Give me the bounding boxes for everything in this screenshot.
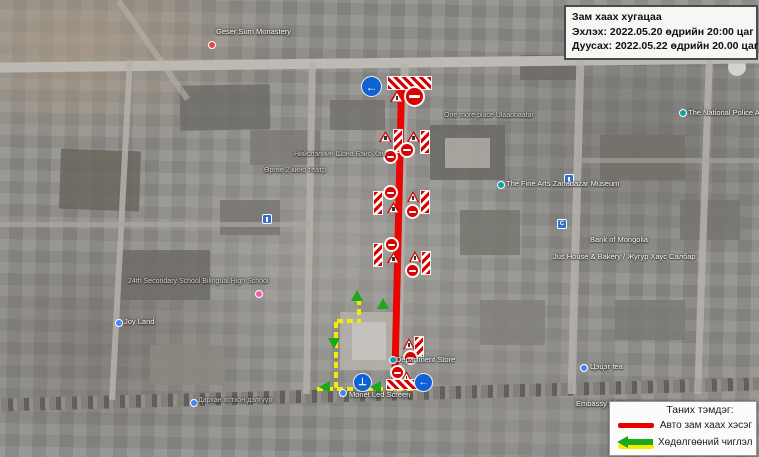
chevron-v-sign-icon (373, 243, 383, 267)
closure-title: Зам хаах хугацаа (572, 10, 751, 25)
triangle-mark (392, 207, 394, 211)
poi-dot-red-icon (208, 41, 216, 49)
closed-section-swatch (618, 417, 658, 434)
building-block (445, 138, 490, 168)
poi-dot-pink-icon (255, 290, 263, 298)
map-label: The National Police Age (688, 108, 759, 117)
no-entry-bar (409, 270, 416, 272)
building-block (352, 322, 386, 360)
poi-dot-blue-icon (339, 389, 347, 397)
building-block (120, 250, 210, 300)
chevron-v-sign-icon (373, 191, 383, 215)
triangle-mark (414, 256, 416, 260)
legend-item-label: Хөдөлгөөний чиглэл (658, 437, 752, 448)
building-block (680, 200, 740, 240)
map-label: Department Store (396, 355, 455, 364)
map-label: Дархан хотхон дэлгүүр (198, 397, 272, 404)
triangle-mark (396, 96, 398, 101)
detour-line (337, 319, 361, 323)
detour-arrow-left-icon (319, 381, 330, 393)
map-label: Цэцэг tea (590, 362, 623, 371)
chevron-v-sign-icon (421, 251, 431, 275)
no-entry-sign-icon (399, 142, 415, 158)
no-entry-bar (387, 192, 394, 194)
closure-end: Дуусах: 2022.05.22 өдрийн 20.00 цаг (572, 39, 751, 54)
blue-circle-sign-icon: ← (361, 76, 382, 97)
detour-arrow-up-icon (377, 298, 389, 309)
no-entry-bar (403, 149, 411, 151)
green-arrow-shaft (627, 439, 653, 445)
chevron-v-sign-icon (420, 190, 430, 214)
map-label: One more place Ulaanbaatar (444, 112, 534, 119)
closure-start: Эхлэх: 2022.05.20 өдрийн 20:00 цаг (572, 25, 751, 40)
no-entry-bar (409, 211, 416, 213)
map-label: Bank of Mongolia (590, 235, 648, 244)
legend-item-traffic-direction: Хөдөлгөөний чиглэл (618, 434, 752, 451)
no-entry-sign-icon (404, 86, 425, 107)
poi-sq-blue-icon (262, 214, 272, 224)
triangle-mark (412, 196, 414, 200)
detour-line (334, 322, 338, 388)
green-arrow-icon (618, 436, 656, 450)
map-label: The Fine Arts Zanabazar Museum (506, 179, 619, 188)
map-label: Нийслэлийн Шона Бэйс Хэм (294, 151, 386, 158)
building-block (150, 345, 225, 385)
detour-arrow-down-icon (328, 338, 340, 349)
no-entry-sign-icon (405, 204, 420, 219)
road-closure-map: Geser Sum MonasteryНийслэлийн Шона Бэйс … (0, 0, 759, 457)
map-label: Joy Land (124, 317, 154, 326)
building-block (460, 210, 520, 255)
legend-title: Таних тэмдэг: (618, 404, 752, 417)
building-block (180, 84, 271, 131)
building-block (330, 100, 385, 130)
poi-dot-blue-icon (190, 399, 198, 407)
detour-line (357, 299, 361, 321)
no-entry-bar (394, 372, 401, 374)
no-entry-sign-icon (405, 263, 420, 278)
legend-item-label: Авто зам хаах хэсэг (660, 420, 752, 431)
triangle-mark (392, 257, 394, 261)
green-arrow-head (617, 436, 628, 448)
building-block (480, 300, 545, 345)
chevron-v-sign-icon (420, 130, 430, 154)
no-entry-bar (388, 244, 395, 246)
no-entry-sign-icon (390, 365, 405, 380)
blue-circle-sign-icon: ← (414, 373, 433, 392)
poi-sq-blue-icon: C (557, 219, 567, 229)
map-label: Geser Sum Monastery (216, 27, 291, 36)
building-block (59, 149, 141, 212)
detour-arrow-up-icon (351, 290, 363, 301)
poi-dot-blue-icon (115, 319, 123, 327)
triangle-mark (384, 136, 386, 140)
triangle-mark (412, 136, 414, 140)
map-label: 24th Secondary School Bilingual High Sch… (128, 278, 268, 285)
red-line-icon (618, 423, 654, 428)
map-label: Monet Led Screen (349, 390, 410, 399)
no-entry-sign-icon (383, 185, 398, 200)
poi-dot-teal-icon (679, 109, 687, 117)
legend-item-closed-section: Авто зам хаах хэсэг (618, 417, 752, 434)
no-entry-bar (409, 95, 420, 98)
building-block (615, 300, 685, 340)
triangle-mark (408, 343, 410, 347)
map-label: Өргөө 2 кино театр (264, 167, 326, 174)
closure-period-box: Зам хаах хугацаа Эхлэх: 2022.05.20 өдрий… (564, 5, 758, 60)
legend-box: Таних тэмдэг: Авто зам хаах хэсэг Хөдөлг… (609, 401, 757, 456)
traffic-direction-swatch (618, 434, 656, 451)
poi-dot-teal-icon (497, 181, 505, 189)
poi-dot-blue-icon (580, 364, 588, 372)
no-entry-bar (387, 156, 394, 158)
map-label: Jus House & Bakery / Жугур Хаус Салбар (553, 252, 696, 261)
road (575, 158, 759, 163)
no-entry-sign-icon (384, 237, 399, 252)
